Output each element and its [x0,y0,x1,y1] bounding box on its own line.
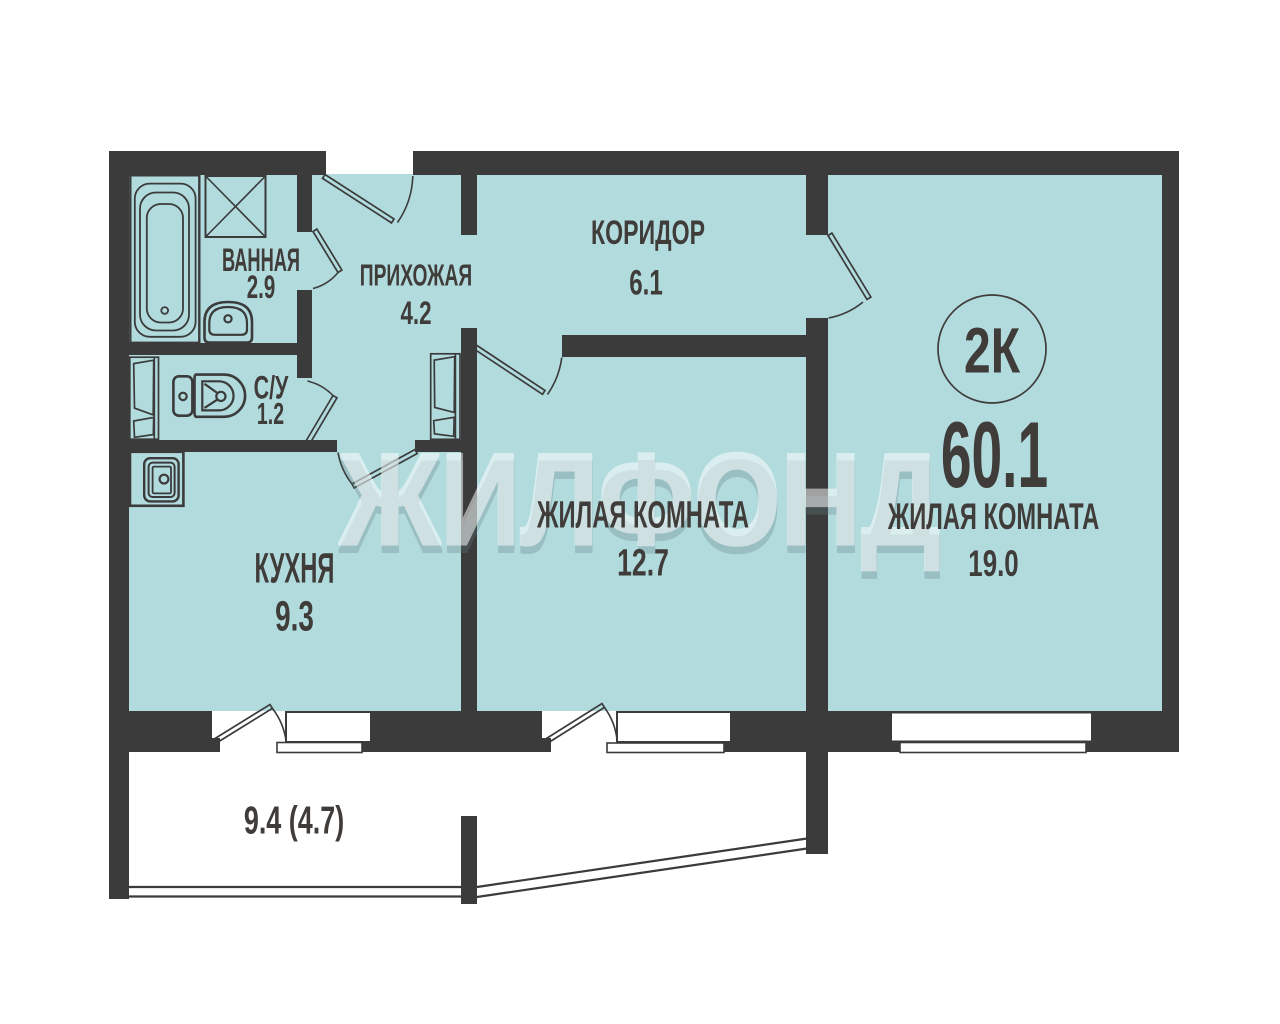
svg-text:4.2: 4.2 [400,295,431,331]
svg-text:2К: 2К [964,315,1020,386]
svg-text:12.7: 12.7 [617,541,669,584]
svg-text:9.3: 9.3 [275,591,314,640]
svg-text:КУХНЯ: КУХНЯ [255,545,335,592]
svg-text:19.0: 19.0 [968,542,1018,584]
svg-text:2.9: 2.9 [247,269,275,305]
svg-text:КОРИДОР: КОРИДОР [591,213,705,252]
svg-text:ПРИХОЖАЯ: ПРИХОЖАЯ [360,259,472,293]
svg-text:9.4 (4.7): 9.4 (4.7) [244,800,344,843]
svg-text:ЖИЛАЯ КОМНАТА: ЖИЛАЯ КОМНАТА [536,493,749,536]
svg-text:60.1: 60.1 [941,404,1048,508]
svg-text:1.2: 1.2 [257,398,284,432]
svg-text:6.1: 6.1 [629,264,663,303]
